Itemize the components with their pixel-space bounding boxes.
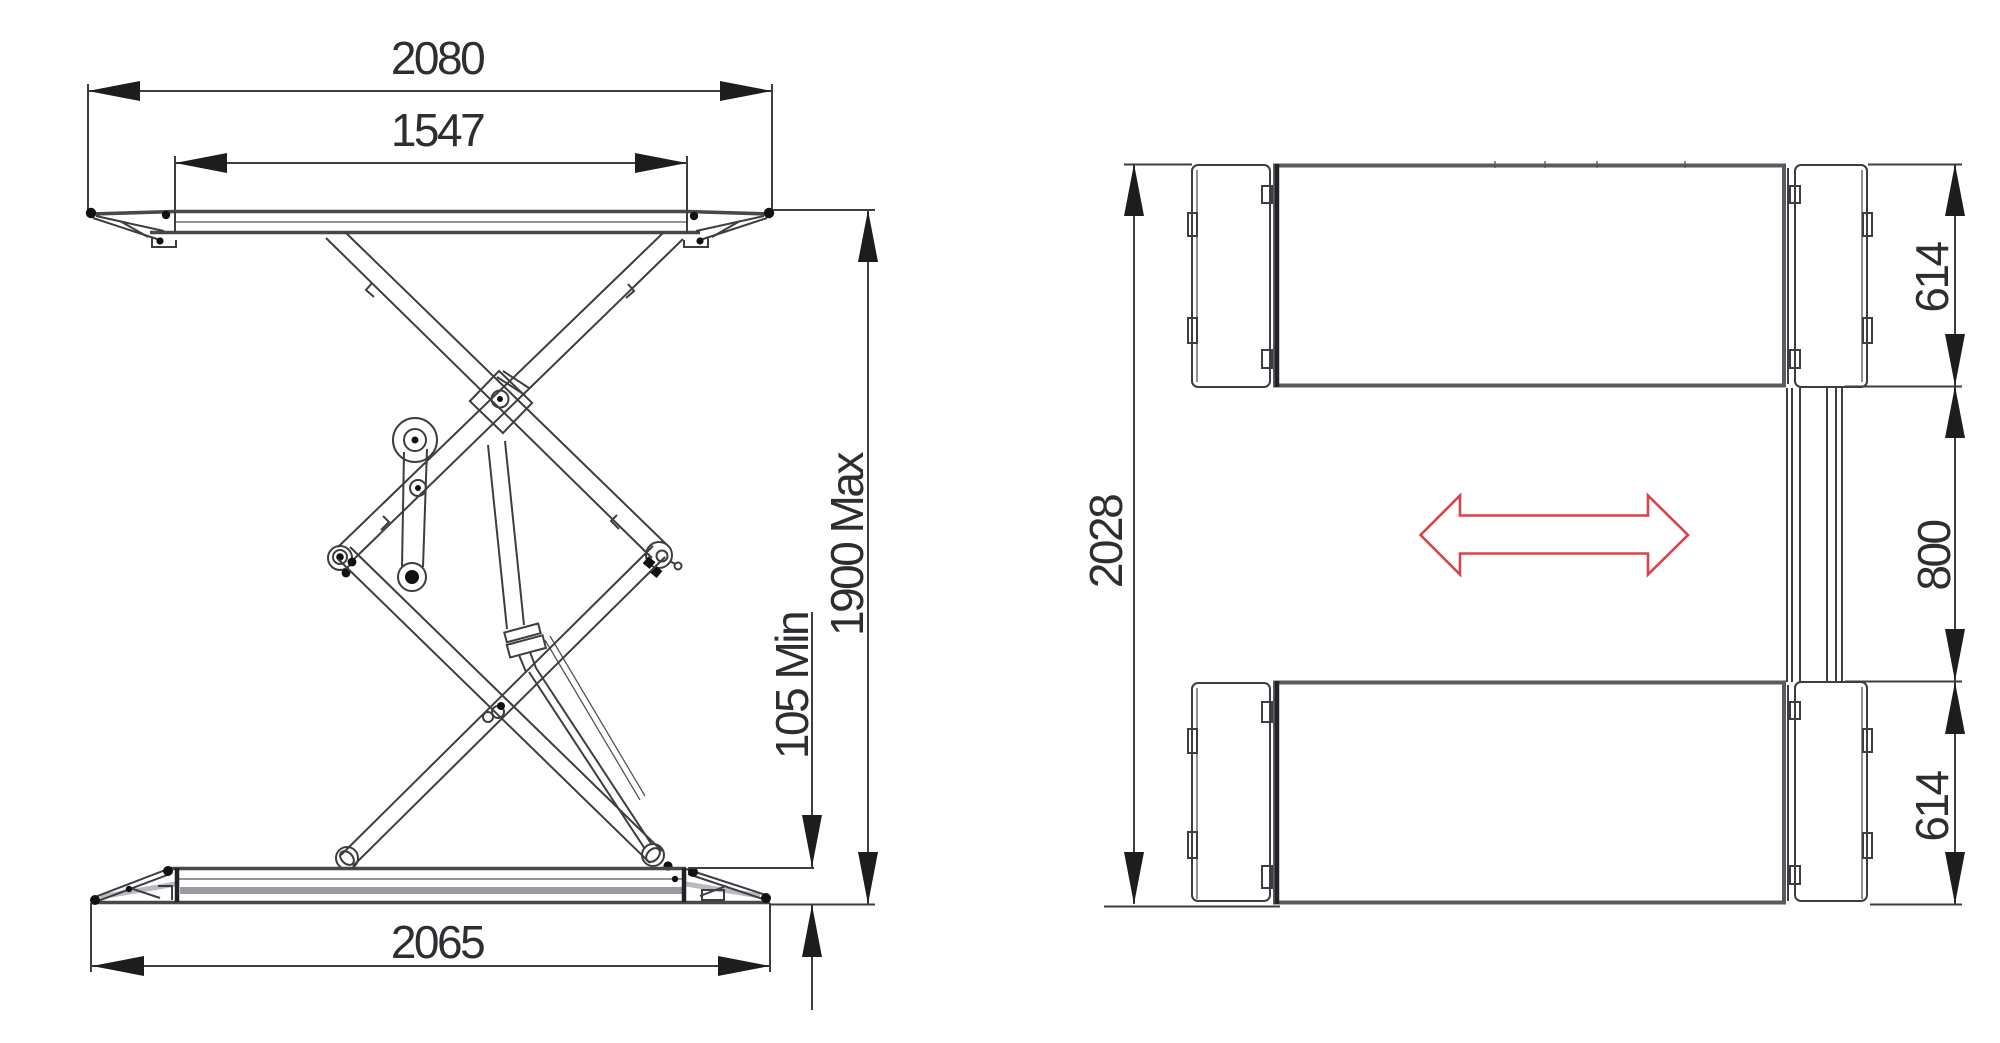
svg-text:800: 800 — [1908, 520, 1960, 590]
svg-text:614: 614 — [1906, 770, 1958, 841]
svg-text:2065: 2065 — [391, 916, 484, 968]
svg-text:1900 Max: 1900 Max — [821, 451, 873, 636]
svg-text:1547: 1547 — [391, 104, 484, 156]
svg-text:614: 614 — [1906, 241, 1958, 312]
svg-text:2080: 2080 — [391, 32, 484, 84]
svg-text:2028: 2028 — [1080, 495, 1132, 588]
svg-text:105 Min: 105 Min — [766, 613, 818, 759]
